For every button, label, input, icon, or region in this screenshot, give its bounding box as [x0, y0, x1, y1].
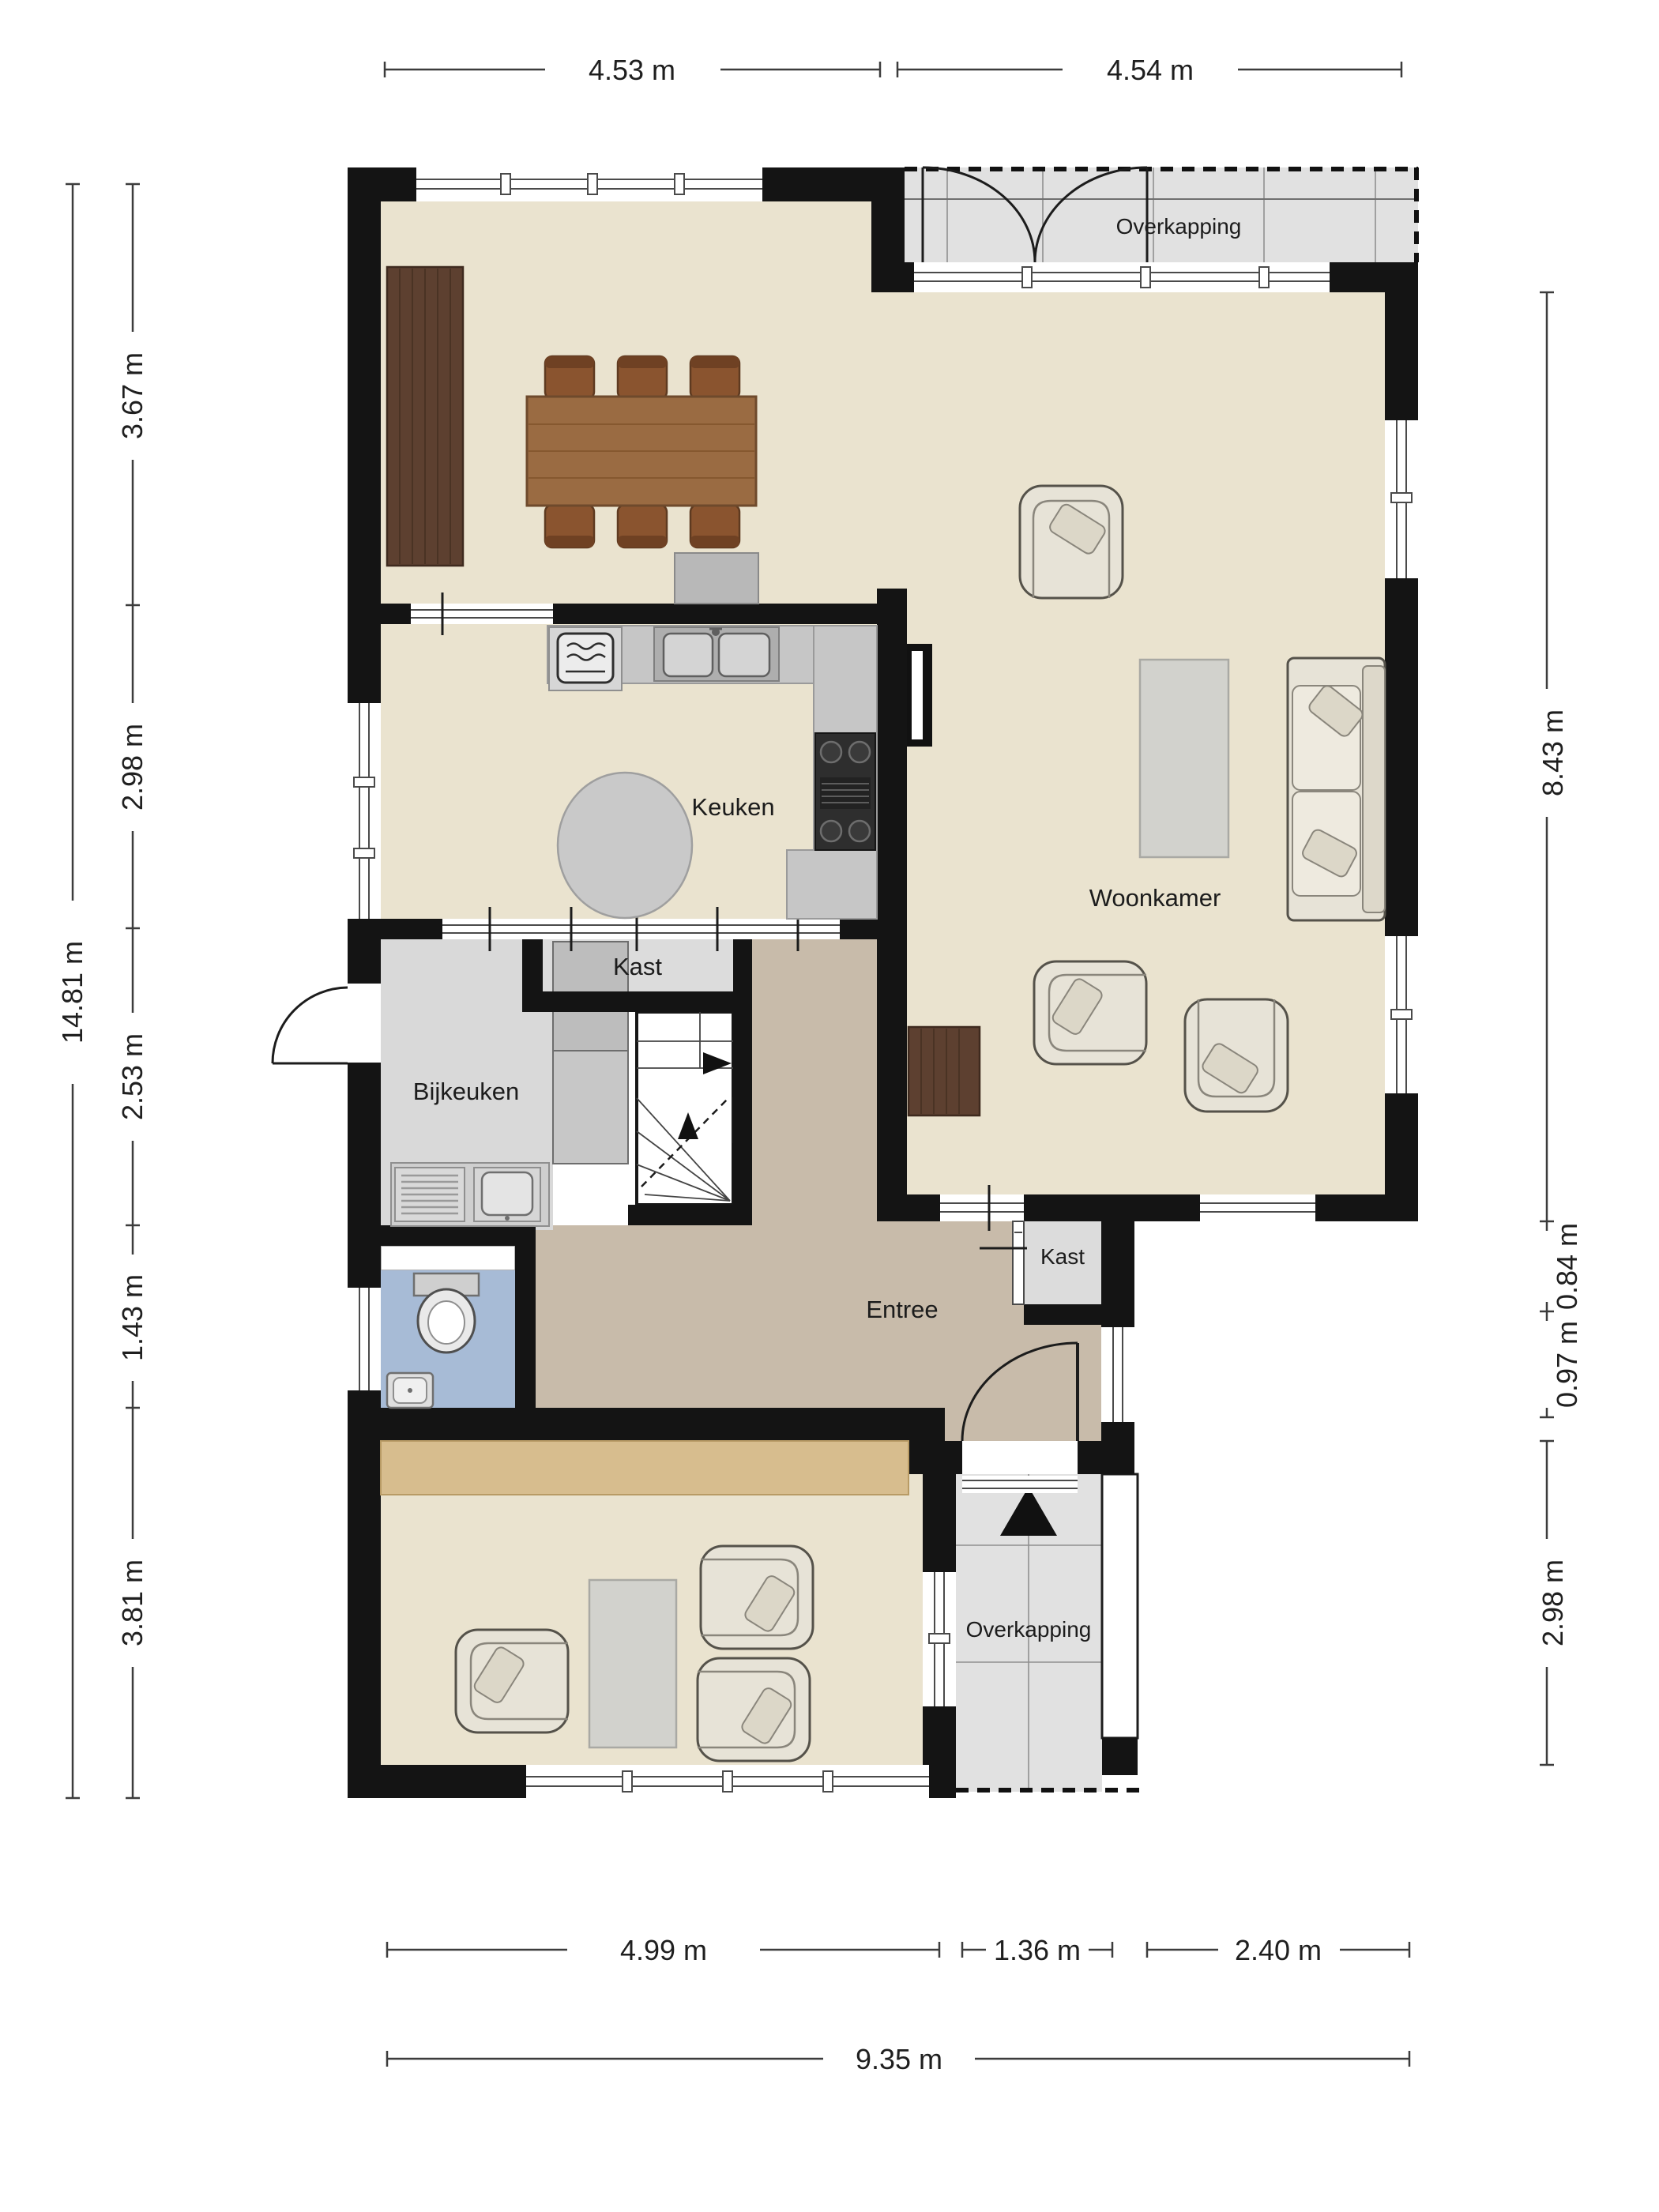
- armchair: [1020, 486, 1123, 598]
- room-label-kast-entree: Kast: [1040, 1244, 1085, 1269]
- svg-text:4.99 m: 4.99 m: [620, 1934, 707, 1966]
- svg-text:4.53 m: 4.53 m: [589, 54, 675, 86]
- kitchen-hood-cabinet: [675, 553, 758, 604]
- room-label-woonkamer: Woonkamer: [1089, 884, 1221, 912]
- svg-text:4.54 m: 4.54 m: [1107, 54, 1194, 86]
- svg-text:2.53 m: 2.53 m: [116, 1033, 149, 1120]
- dimension-top-left: 4.53 m: [385, 54, 880, 86]
- kitchen-sink-icon: [654, 627, 779, 681]
- room-label-overkapping-bottom: Overkapping: [966, 1617, 1092, 1642]
- room-label-overkapping-top: Overkapping: [1116, 214, 1242, 239]
- microwave-oven-icon: [549, 627, 622, 690]
- dining-chair: [618, 505, 667, 547]
- coffee-table: [1140, 660, 1228, 857]
- armchair: [456, 1630, 568, 1732]
- dimension-top-right: 4.54 m: [897, 54, 1401, 86]
- svg-text:3.67 m: 3.67 m: [116, 352, 149, 439]
- sofa: [1288, 658, 1385, 920]
- room-label-keuken: Keuken: [691, 793, 774, 821]
- window-kitchen-left: [348, 703, 381, 919]
- stairs: [637, 1012, 749, 1205]
- armchair: [1185, 999, 1288, 1112]
- armchair: [1034, 961, 1146, 1064]
- svg-text:8.43 m: 8.43 m: [1537, 709, 1569, 796]
- dining-sideboard: [387, 267, 463, 566]
- door-bijkeuken-exterior: [273, 984, 381, 1063]
- sitting-room-table: [589, 1580, 676, 1747]
- dining-table: [527, 397, 756, 506]
- dimension-left-overall: 14.81 m: [56, 184, 88, 1798]
- svg-text:9.35 m: 9.35 m: [856, 2043, 942, 2075]
- dimension-bottom-overall: 9.35 m: [387, 2043, 1409, 2075]
- sitting-room-sideboard: [381, 1441, 908, 1495]
- washing-machine-icon: [391, 1163, 549, 1226]
- room-label-entree: Entree: [866, 1296, 938, 1323]
- svg-text:1.36 m: 1.36 m: [994, 1934, 1081, 1966]
- svg-text:0.97 m: 0.97 m: [1551, 1321, 1583, 1408]
- hand-basin-icon: [387, 1373, 433, 1408]
- svg-text:14.81 m: 14.81 m: [56, 941, 88, 1044]
- dining-chair: [545, 505, 594, 547]
- svg-text:3.81 m: 3.81 m: [116, 1559, 149, 1646]
- room-label-bijkeuken: Bijkeuken: [413, 1078, 519, 1105]
- woonkamer-sideboard: [908, 1027, 980, 1115]
- stove-icon: [815, 733, 875, 850]
- svg-text:2.98 m: 2.98 m: [116, 724, 149, 811]
- svg-text:1.43 m: 1.43 m: [116, 1274, 149, 1361]
- window-wc-left: [348, 1288, 381, 1390]
- dining-chair: [545, 356, 594, 399]
- room-label-kast-kitchen: Kast: [613, 953, 662, 980]
- window-front-sidelight: [1101, 1327, 1134, 1422]
- window-dining-top: [416, 167, 762, 201]
- window-woonkamer-top: [914, 262, 1330, 292]
- armchair: [701, 1546, 813, 1649]
- armchair: [698, 1658, 810, 1761]
- window-right-upper: [1385, 420, 1418, 578]
- floorplan-page: Keuken Woonkamer Bijkeuken Entree Kast K…: [0, 0, 1659, 2212]
- svg-text:0.84 m: 0.84 m: [1551, 1223, 1583, 1310]
- porch-wall-column: [1102, 1474, 1138, 1738]
- floorplan-drawing: Keuken Woonkamer Bijkeuken Entree Kast K…: [0, 0, 1659, 2212]
- svg-text:2.40 m: 2.40 m: [1235, 1934, 1322, 1966]
- tv-cabinet: [907, 644, 932, 747]
- dimension-right-segments: 8.43 m 0.84 m 0.97 m 2.98 m: [1537, 292, 1583, 1765]
- dining-chair: [690, 356, 739, 399]
- kitchen-rug: [558, 773, 692, 918]
- dimension-left-segments: 3.67 m 2.98 m 2.53 m 1.43 m 3.81 m: [116, 184, 149, 1798]
- dimension-bottom-segments: 4.99 m 1.36 m 2.40 m: [387, 1934, 1409, 1966]
- dining-chair: [690, 505, 739, 547]
- floor-wc-niche: [381, 1246, 515, 1270]
- svg-text:2.98 m: 2.98 m: [1537, 1559, 1569, 1646]
- window-woonkamer-bottom: [1200, 1194, 1315, 1221]
- toilet-icon: [414, 1273, 479, 1352]
- window-sitting-right: [923, 1572, 956, 1706]
- window-sitting-bottom: [526, 1765, 929, 1798]
- dining-chair: [618, 356, 667, 399]
- window-right-lower: [1385, 936, 1418, 1093]
